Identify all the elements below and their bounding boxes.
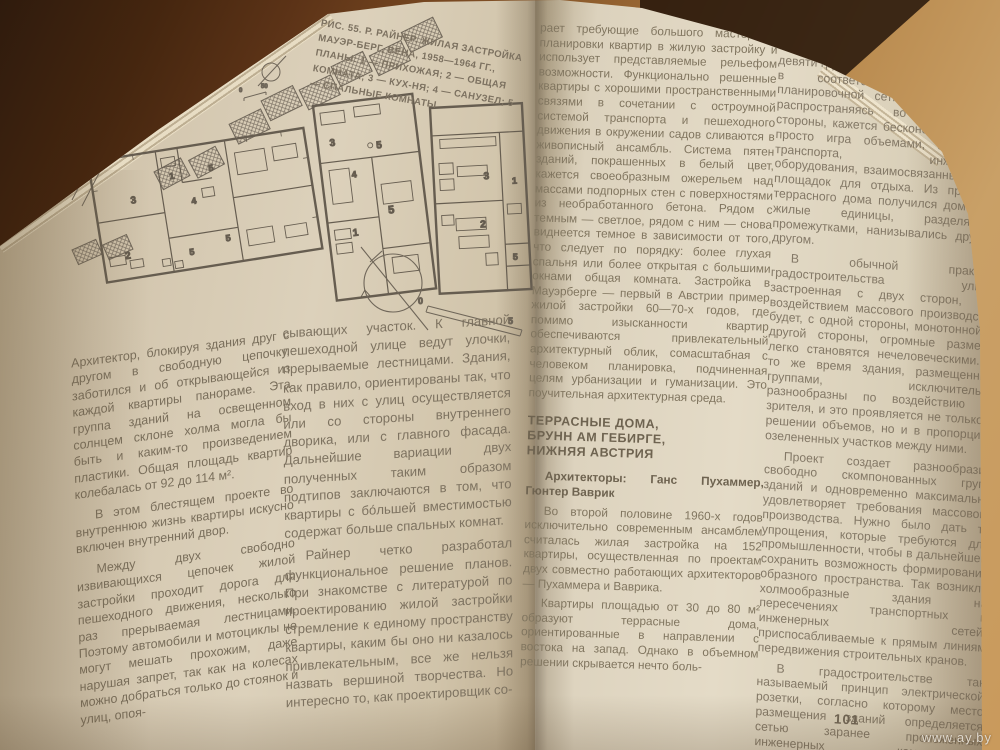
paragraph: Райнер четко разработал функциональное р… xyxy=(284,535,513,713)
scale-label: 0 xyxy=(418,296,423,306)
left-page-column-2: сывающих участок. К главной пешеходной у… xyxy=(282,311,513,718)
right-page-column-1: рает требующие большого мастерства плани… xyxy=(520,20,778,680)
room-label: 5 xyxy=(376,140,383,152)
page-shading xyxy=(0,695,1000,750)
floor-plan-b: 3 4 5 5 1 xyxy=(313,94,436,301)
room-label: 1 xyxy=(512,176,518,186)
north-arrow-icon xyxy=(258,56,286,86)
paragraph: Во второй половине 1960-х годов исключит… xyxy=(522,503,763,598)
page-shading xyxy=(0,170,150,750)
page-shading xyxy=(905,90,1000,750)
watermark: www.ay.by xyxy=(922,730,992,745)
site-scale-bar: 0 50 xyxy=(239,84,268,101)
room-label: 3 xyxy=(329,138,336,150)
room-label: 5 xyxy=(388,204,396,217)
book-photo: 0 50 3 1 4 5 2 xyxy=(0,0,1000,750)
room-label: 5 xyxy=(513,252,519,262)
paragraph: Квартиры площадью от 30 до 80 м² образую… xyxy=(520,595,760,675)
room-label: 1 xyxy=(352,227,359,239)
scale-label: 0 xyxy=(239,88,243,94)
room-label: 4 xyxy=(351,169,357,180)
room-label: 2 xyxy=(480,219,487,230)
room-label: 3 xyxy=(483,171,490,182)
scale-label: 50 xyxy=(261,84,268,90)
section-heading: ТЕРРАСНЫЕ ДОМА, БРУНН АМ ГЕБИРГЕ, НИЖНЯЯ… xyxy=(527,414,766,466)
room-label: 4 xyxy=(191,196,198,207)
room-label: 5 xyxy=(189,247,196,258)
paragraph: рает требующие большого мастерства плани… xyxy=(528,20,778,407)
open-book: 0 50 3 1 4 5 2 xyxy=(0,0,1000,750)
paragraph: сывающих участок. К главной пешеходной у… xyxy=(282,311,511,544)
floor-plan-c: 3 2 1 5 xyxy=(430,103,532,294)
architects-line: Архитекторы: Ганс Пухаммер, Гюнтер Ваври… xyxy=(525,469,764,506)
room-label: 5 xyxy=(225,233,232,244)
